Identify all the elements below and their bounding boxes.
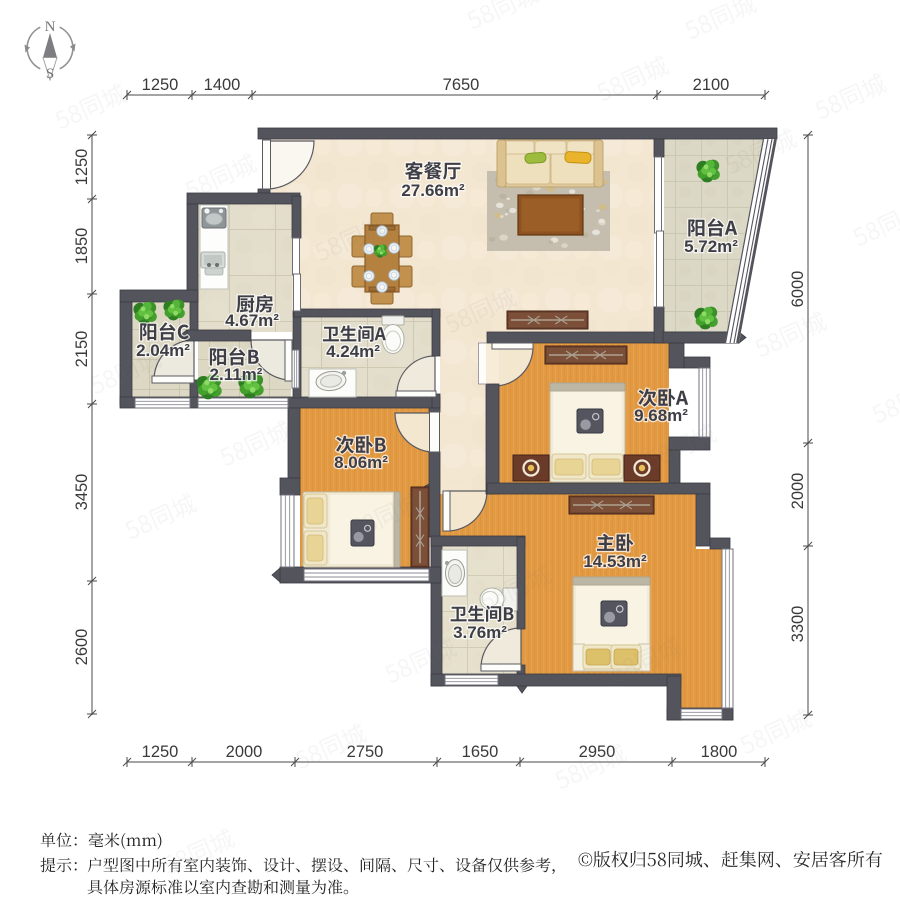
svg-text:1650: 1650: [462, 743, 499, 761]
svg-text:3.76m²: 3.76m²: [453, 623, 507, 642]
svg-text:1850: 1850: [73, 228, 91, 265]
svg-text:8.06m²: 8.06m²: [334, 453, 388, 472]
svg-text:27.66m²: 27.66m²: [401, 181, 465, 200]
svg-text:1250: 1250: [142, 76, 179, 94]
svg-text:6000: 6000: [789, 271, 807, 308]
svg-text:2750: 2750: [347, 743, 384, 761]
svg-text:3450: 3450: [73, 474, 91, 511]
svg-text:7650: 7650: [443, 76, 480, 94]
svg-text:3300: 3300: [789, 606, 807, 643]
svg-text:9.68m²: 9.68m²: [634, 406, 688, 425]
svg-text:1400: 1400: [204, 76, 241, 94]
svg-text:1250: 1250: [142, 743, 179, 761]
svg-text:1250: 1250: [73, 149, 91, 186]
svg-text:S: S: [46, 66, 54, 82]
svg-text:14.53m²: 14.53m²: [583, 552, 647, 571]
svg-text:5.72m²: 5.72m²: [684, 237, 738, 256]
svg-text:2000: 2000: [226, 743, 263, 761]
svg-text:N: N: [45, 19, 56, 35]
svg-text:2100: 2100: [693, 76, 730, 94]
svg-text:2150: 2150: [73, 331, 91, 368]
svg-text:4.67m²: 4.67m²: [225, 311, 279, 330]
svg-text:2600: 2600: [73, 629, 91, 666]
svg-text:2.11m²: 2.11m²: [210, 365, 263, 384]
svg-text:2000: 2000: [789, 473, 807, 510]
svg-text:4.24m²: 4.24m²: [326, 342, 380, 361]
svg-text:1800: 1800: [701, 743, 738, 761]
